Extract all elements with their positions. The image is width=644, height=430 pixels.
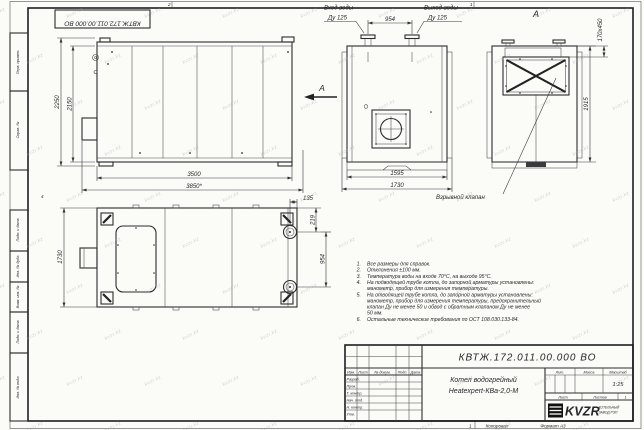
note-number: 1. bbox=[357, 262, 361, 268]
product-name-line1: Котел водогрейный bbox=[450, 376, 517, 384]
note-line: Все размеры для справок. bbox=[367, 262, 431, 268]
margin-label: Взам. инв. № bbox=[16, 286, 20, 309]
dim-offset: 135 bbox=[303, 196, 314, 202]
company-line2: ЗАВОД РЭП bbox=[599, 411, 619, 415]
view-side-elevation: 2250 2150 3500 3850* А bbox=[55, 37, 337, 193]
margin-label: Инв. № подл. bbox=[16, 376, 20, 399]
bolt-dots bbox=[107, 51, 289, 154]
scale-header: Масштаб bbox=[609, 370, 627, 374]
sheet-label: Лист bbox=[557, 395, 568, 399]
note-number: 6. bbox=[357, 317, 361, 323]
margin-label: Подп. и дата bbox=[16, 218, 20, 241]
explosion-valve-callout: Взрывной клапан bbox=[436, 194, 485, 201]
dim-height-inner: 2150 bbox=[68, 97, 74, 112]
dim-nozzle-spacing: 954 bbox=[385, 17, 396, 23]
product-name-line2: Heatexpert-КВа-2,0-М bbox=[449, 388, 519, 395]
engineering-drawing: Перв. примен. Справ. № Подп. и дата Инв.… bbox=[0, 0, 644, 430]
sign-row: Нач. отд. bbox=[347, 399, 364, 403]
inlet-size: Ду 125 bbox=[327, 16, 348, 22]
view-arrow-label: А bbox=[318, 83, 325, 93]
note-line: На отводящей трубе котла, до запорной ар… bbox=[367, 291, 533, 298]
col-header-podp: Подп. bbox=[398, 370, 408, 374]
margin-label: Справ. № bbox=[16, 122, 20, 139]
zone-mark: 1 bbox=[470, 2, 473, 7]
lit-header: Лит. bbox=[555, 370, 565, 374]
dim-width: 1595 bbox=[390, 171, 404, 177]
sheets-label: Листов bbox=[592, 395, 607, 399]
note-line: Отклонения ±100 мм. bbox=[367, 268, 421, 274]
margin-label: Инв. № дубл. bbox=[16, 255, 20, 278]
sign-row: Разраб. bbox=[347, 378, 360, 382]
inlet-label: Вход воды bbox=[324, 6, 354, 12]
dim-height-outer: 2250 bbox=[55, 95, 61, 110]
sign-row: Пров. bbox=[347, 385, 357, 389]
mass-header: Масса bbox=[584, 370, 595, 374]
top-stamp: КВТЖ.172.011.00.000 ВО bbox=[55, 10, 150, 28]
company-logo: KVZR КОТЕЛЬНЫЙ ЗАВОД РЭП bbox=[548, 404, 620, 419]
dim-length: 3500 bbox=[187, 172, 201, 178]
title-block: КВТЖ.172.011.00.000 ВО Котел водогрейный… bbox=[345, 345, 633, 421]
margin-label: Подп. и дата bbox=[16, 320, 20, 343]
technical-notes: 1.Все размеры для справок.2.Отклонения ±… bbox=[356, 262, 541, 323]
dim-flange-edge: 219 bbox=[311, 214, 317, 226]
company-abbr: KVZR bbox=[565, 405, 600, 419]
sign-row: Н. контр. bbox=[347, 406, 364, 410]
outlet-label: Выход воды bbox=[424, 6, 458, 12]
view-top-plan: 1730 135 219 954 bbox=[58, 196, 331, 310]
scale-value: 1:25 bbox=[613, 382, 625, 388]
note-number: 5. bbox=[357, 292, 361, 298]
zone-mark: 2 bbox=[167, 2, 171, 7]
dim-length-overall: 3850* bbox=[186, 184, 202, 190]
left-margin-column: Перв. примен. Справ. № Подп. и дата Инв.… bbox=[10, 33, 28, 421]
col-header-list: Лист bbox=[357, 370, 368, 374]
footer-strip: 1 Копировал Формат А3 bbox=[469, 423, 566, 428]
col-header-dokum: № докум. bbox=[374, 370, 390, 374]
dim-flange-spacing: 954 bbox=[321, 253, 327, 264]
col-header-izm: Изм. bbox=[347, 370, 355, 374]
note-number: 4. bbox=[357, 280, 361, 286]
note-line: Температура воды на входе 70°С, на выход… bbox=[367, 274, 492, 280]
col-header-data: Дата bbox=[410, 370, 421, 374]
note-number: 3. bbox=[357, 274, 361, 280]
sign-row: Т. контр. bbox=[347, 392, 363, 396]
margin-label: Перв. примен. bbox=[16, 50, 20, 75]
footer-copy-label: Копировал bbox=[486, 423, 509, 428]
note-number: 2. bbox=[356, 268, 361, 274]
edge-tabs bbox=[133, 205, 259, 310]
note-line: клапан Ду не менее 50 и обвод с обратным… bbox=[367, 305, 530, 311]
dim-width-overall: 1730 bbox=[390, 183, 404, 189]
dim-height: 1915 bbox=[584, 97, 590, 111]
note-line: 50 мм. bbox=[367, 311, 383, 317]
dim-top-width: 1730 bbox=[58, 250, 64, 264]
view-direction-arrow: А bbox=[304, 83, 337, 100]
company-line1: КОТЕЛЬНЫЙ bbox=[599, 406, 620, 410]
outlet-size: Ду 125 bbox=[427, 16, 448, 22]
zone-marks: 2 1 4 bbox=[41, 2, 473, 199]
footer-format-label: Формат А3 bbox=[540, 423, 566, 428]
note-line: манометр, прибор для измерения температу… bbox=[367, 286, 489, 292]
sign-row: Утв. bbox=[347, 413, 355, 417]
doc-number: КВТЖ.172.011.00.000 ВО bbox=[459, 353, 597, 364]
note-line: манометр, прибор для измерения температу… bbox=[367, 297, 541, 304]
lifting-lugs bbox=[101, 213, 293, 304]
footer-num: 1 bbox=[469, 423, 472, 428]
dim-opening: 170х450 bbox=[598, 18, 604, 42]
sheets-value: 1 bbox=[624, 395, 626, 399]
inlet-callout: Вход воды Ду 125 bbox=[324, 6, 364, 34]
sheet-frame bbox=[10, 2, 641, 429]
view-label: А bbox=[532, 9, 539, 19]
view-rear: А 1915 170х450 Взрывной клапан bbox=[436, 9, 608, 201]
zone-mark: 4 bbox=[41, 194, 44, 199]
note-line: Остальные технические требования по ОСТ … bbox=[367, 317, 519, 323]
outlet-callout: Выход воды Ду 125 bbox=[417, 6, 462, 34]
view-front: 954 Вход воды Ду 125 Выход воды Ду 125 1… bbox=[324, 6, 462, 193]
note-line: На подводящей трубе котла, до запорной а… bbox=[367, 279, 535, 286]
stamp-doc-number: КВТЖ.172.011.00.000 ВО bbox=[64, 20, 140, 27]
